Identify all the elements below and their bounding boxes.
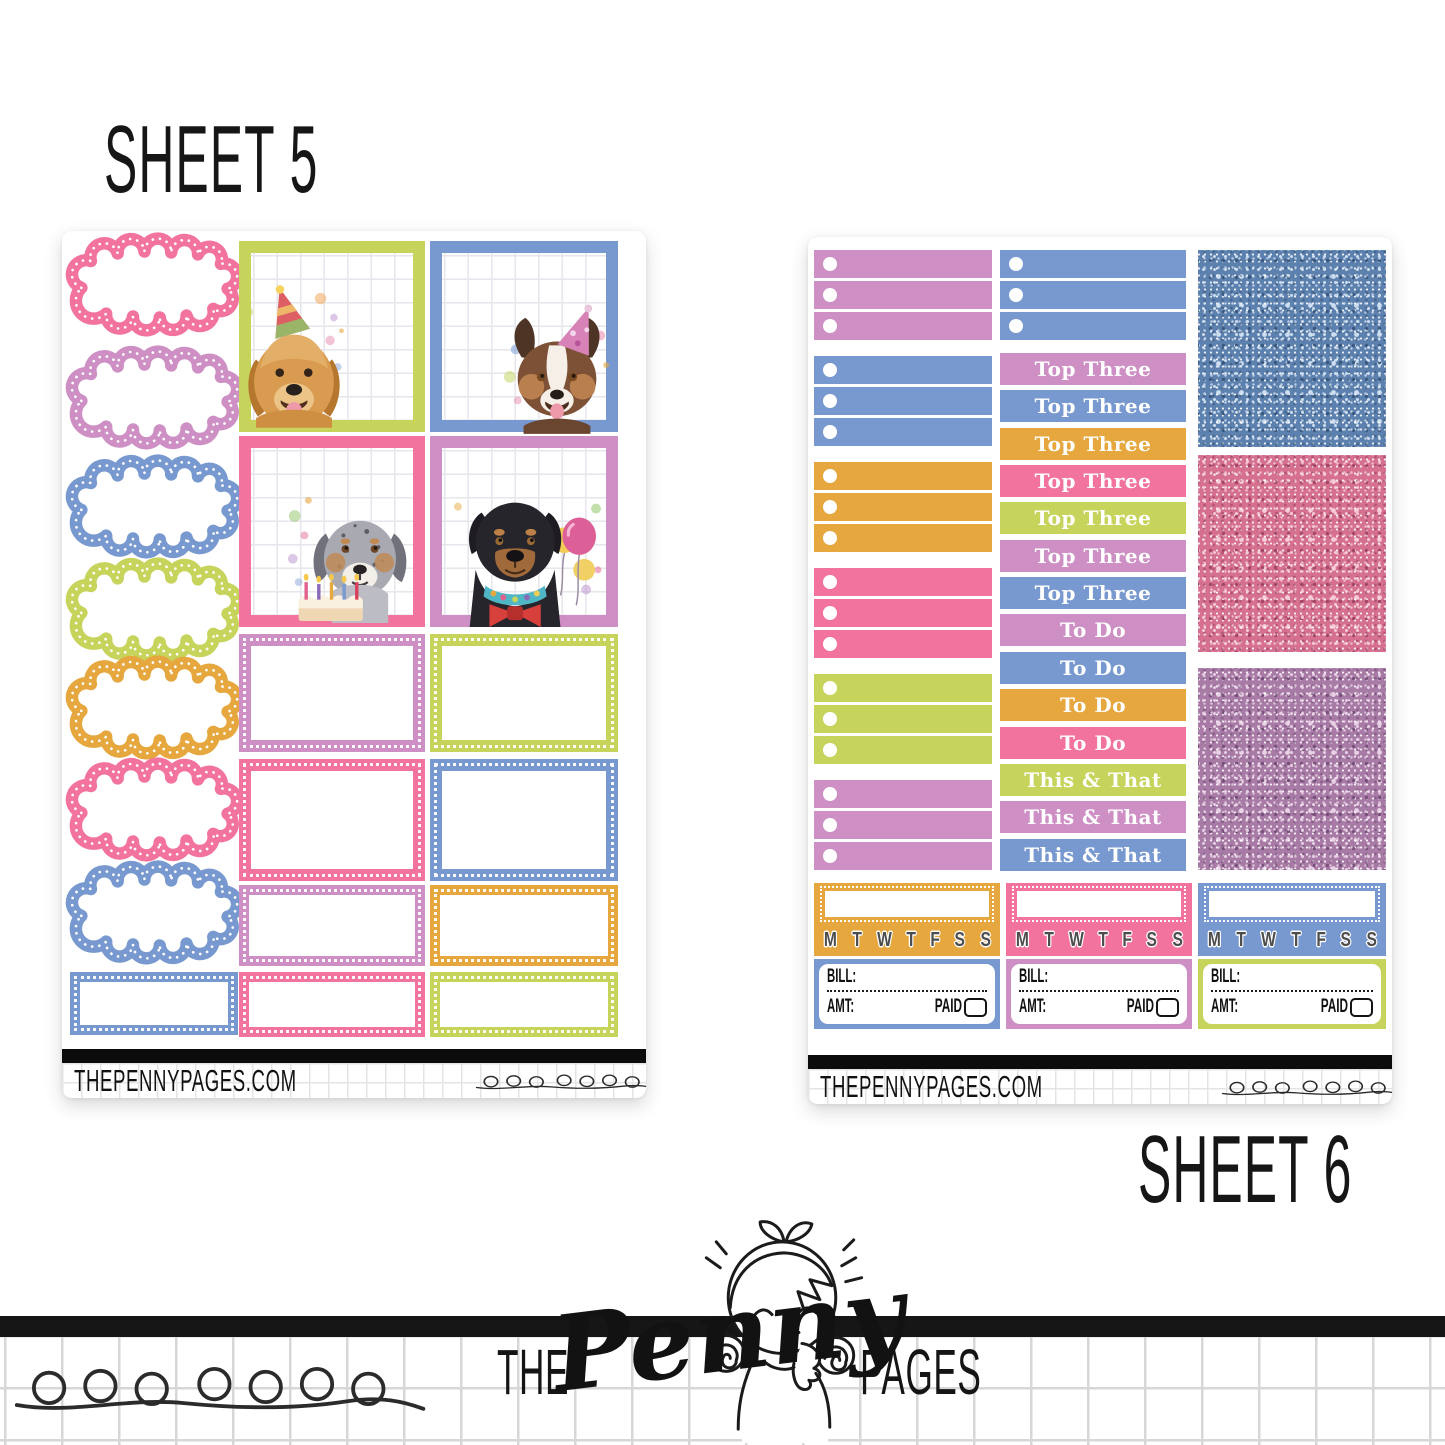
header-sticker-this-that: This & That (1000, 801, 1186, 833)
bill-tracker-sticker-blue: BILL:AMT: PAID (814, 959, 1000, 1029)
australian-shepherd-illustration (498, 306, 616, 434)
habit-tracker-title-box (825, 891, 989, 917)
checklist-row (814, 356, 992, 384)
sheet5-title: SHEET 5 (104, 116, 318, 204)
checklist-bullet-icon (823, 787, 837, 801)
wide-box-sticker-blue-dotted-border (74, 976, 234, 1031)
cloud-label-sticker-blue (68, 862, 240, 962)
header-sticker-top-three: Top Three (1000, 390, 1186, 422)
amount-row: AMT: PAID (1211, 994, 1373, 1020)
photo-box-golden-retriever (239, 241, 425, 432)
weekday-letter: S (1366, 929, 1376, 952)
bill-label: BILL: (1211, 966, 1240, 988)
checklist-bullet-icon (823, 469, 837, 483)
weekday-letter: S (955, 929, 965, 952)
cloud-label-sticker-pink (68, 234, 240, 334)
checklist-row (1000, 281, 1186, 309)
photo-box-rottweiler-balloons (430, 436, 618, 627)
header-sticker-top-three: Top Three (1000, 577, 1186, 609)
checklist-sticker-group-green (814, 674, 992, 767)
habit-tracker-sticker-blue: MTWTFSS (1198, 883, 1386, 956)
checklist-sticker-group-blue (1000, 250, 1186, 343)
checklist-bullet-icon (823, 531, 837, 545)
weekday-letter: S (1341, 929, 1351, 952)
full-box-sticker-green-dotted-border (434, 638, 614, 748)
weekday-letter: T (1236, 929, 1246, 952)
weekday-letter: W (1261, 929, 1276, 952)
half-box-sticker-green-dotted-border (434, 976, 614, 1033)
checklist-row (814, 736, 992, 764)
amount-row: AMT: PAID (1019, 994, 1179, 1020)
checklist-bullet-icon (823, 500, 837, 514)
glitter-swatch-purple-glitter (1198, 668, 1386, 870)
weekday-letter: S (1147, 929, 1157, 952)
divider-bar (62, 1049, 646, 1063)
checklist-bullet-icon (823, 743, 837, 757)
bill-tracker-body: BILL:AMT: PAID (1203, 964, 1381, 1024)
weekday-row: MTWTFSS (822, 928, 992, 952)
half-box-sticker-purple (239, 885, 425, 966)
header-sticker-this-that: This & That (1000, 839, 1186, 871)
weekday-letter: M (824, 929, 837, 952)
header-sticker-top-three: Top Three (1000, 540, 1186, 572)
checklist-row (1000, 312, 1186, 340)
sticker-sheet-5: THEPENNYPAGES.COM DOG BIRTHDAY LARGE BOX… (62, 231, 646, 1098)
checklist-bullet-icon (1009, 257, 1023, 271)
bill-label: BILL: (1019, 966, 1048, 988)
cloud-label-sticker-blue (68, 456, 240, 556)
weekday-letter: W (877, 929, 892, 952)
merle-dog-birthday-cake-illustration (285, 477, 431, 623)
full-box-sticker-purple-dotted-border (243, 638, 421, 748)
full-box-sticker-pink (239, 759, 425, 881)
half-box-sticker-green (430, 972, 618, 1037)
checklist-row (814, 674, 992, 702)
header-sticker-to-do: To Do (1000, 652, 1186, 684)
checklist-bullet-icon (823, 425, 837, 439)
site-url: THEPENNYPAGES.COM (74, 1063, 297, 1099)
header-sticker-to-do: To Do (1000, 727, 1186, 759)
photo-box-australian-shepherd (430, 241, 618, 432)
photo-box-merle-dog-cake (239, 436, 425, 627)
paid-label: PAID (1321, 996, 1348, 1018)
full-box-sticker-pink-dotted-border (243, 763, 421, 877)
checklist-bullet-icon (823, 288, 837, 302)
header-sticker-top-three: Top Three (1000, 465, 1186, 497)
checklist-sticker-group-orange (814, 462, 992, 555)
amt-label: AMT: (827, 996, 854, 1018)
amt-label: AMT: (1211, 996, 1238, 1018)
checklist-bullet-icon (1009, 288, 1023, 302)
checklist-bullet-icon (823, 849, 837, 863)
checklist-sticker-group-purple (814, 780, 992, 873)
checklist-row (814, 524, 992, 552)
loop-doodle (1221, 1074, 1392, 1100)
divider-bar (808, 1055, 1392, 1069)
wide-box-sticker-blue (70, 972, 238, 1035)
checklist-row (814, 250, 992, 278)
checklist-row (814, 780, 992, 808)
weekday-letter: M (1016, 929, 1029, 952)
sheet6-footer: THEPENNYPAGES.COM DOG BIRTHDAY HEADERS /… (808, 1069, 1392, 1104)
golden-retriever-illustration (237, 285, 351, 428)
checklist-bullet-icon (823, 319, 837, 333)
paid-group: PAID (918, 996, 987, 1018)
paid-label: PAID (1127, 996, 1154, 1018)
glitter-swatch-blue-glitter (1198, 250, 1386, 447)
checklist-row (814, 705, 992, 733)
checklist-row (814, 312, 992, 340)
bill-row: BILL: (827, 966, 987, 992)
loop-doodle (6, 1348, 438, 1424)
weekday-letter: F (1123, 929, 1133, 952)
glitter-swatch-pink-glitter (1198, 455, 1386, 652)
paid-checkbox (1156, 998, 1179, 1017)
bill-tracker-sticker-purple: BILL:AMT: PAID (1006, 959, 1192, 1029)
half-box-sticker-orange (430, 885, 618, 966)
checklist-row (814, 462, 992, 490)
half-box-sticker-orange-dotted-border (434, 889, 614, 962)
checklist-bullet-icon (823, 606, 837, 620)
checklist-row (1000, 250, 1186, 278)
full-box-sticker-blue-dotted-border (434, 763, 614, 877)
amt-label: AMT: (1019, 996, 1046, 1018)
weekday-letter: T (1099, 929, 1109, 952)
loop-doodle (475, 1068, 646, 1094)
cloud-label-sticker-pink (68, 759, 240, 859)
checklist-bullet-icon (823, 394, 837, 408)
full-box-sticker-blue (430, 759, 618, 881)
checklist-sticker-group-blue (814, 356, 992, 449)
paid-group: PAID (1304, 996, 1373, 1018)
half-box-sticker-purple-dotted-border (243, 889, 421, 962)
weekday-letter: T (1292, 929, 1302, 952)
half-box-sticker-pink-dotted-border (243, 976, 421, 1033)
rottweiler-balloons-illustration (438, 479, 606, 627)
checklist-bullet-icon (1009, 319, 1023, 333)
sticker-sheet-6: Top ThreeTop ThreeTop ThreeTop ThreeTop … (808, 237, 1392, 1104)
weekday-row: MTWTFSS (1014, 928, 1184, 952)
product-image: SHEET 5 SHEET 6 (0, 0, 1445, 1445)
habit-tracker-sticker-orange: MTWTFSS (814, 883, 1000, 956)
amount-row: AMT: PAID (827, 994, 987, 1020)
checklist-row (814, 842, 992, 870)
weekday-letter: S (980, 929, 990, 952)
checklist-row (814, 630, 992, 658)
weekday-letter: F (1316, 929, 1326, 952)
paid-checkbox (964, 998, 987, 1017)
weekday-row: MTWTFSS (1206, 928, 1378, 952)
header-sticker-top-three: Top Three (1000, 502, 1186, 534)
weekday-letter: F (931, 929, 941, 952)
sheet5-footer: THEPENNYPAGES.COM DOG BIRTHDAY LARGE BOX… (62, 1063, 646, 1098)
bill-label: BILL: (827, 966, 856, 988)
full-box-sticker-purple (239, 634, 425, 752)
header-sticker-to-do: To Do (1000, 614, 1186, 646)
checklist-bullet-icon (823, 575, 837, 589)
habit-tracker-sticker-pink: MTWTFSS (1006, 883, 1192, 956)
header-sticker-top-three: Top Three (1000, 428, 1186, 460)
checklist-sticker-group-purple (814, 250, 992, 343)
weekday-letter: T (907, 929, 917, 952)
party-hat-icon (261, 280, 310, 338)
checklist-row (814, 568, 992, 596)
checklist-row (814, 599, 992, 627)
checklist-row (814, 281, 992, 309)
checklist-row (814, 387, 992, 415)
checklist-row (814, 811, 992, 839)
paid-checkbox (1350, 998, 1373, 1017)
checklist-bullet-icon (823, 712, 837, 726)
habit-tracker-title-box (1017, 891, 1181, 917)
bill-row: BILL: (1211, 966, 1373, 992)
checklist-bullet-icon (823, 363, 837, 377)
checklist-row (814, 493, 992, 521)
full-box-sticker-green (430, 634, 618, 752)
header-sticker-top-three: Top Three (1000, 353, 1186, 385)
weekday-letter: W (1069, 929, 1084, 952)
half-box-sticker-pink (239, 972, 425, 1037)
bill-tracker-body: BILL:AMT: PAID (819, 964, 995, 1024)
weekday-letter: S (1172, 929, 1182, 952)
sheet6-title: SHEET 6 (1138, 1126, 1352, 1214)
weekday-letter: T (1044, 929, 1054, 952)
bill-row: BILL: (1019, 966, 1179, 992)
checklist-bullet-icon (823, 257, 837, 271)
cloud-label-sticker-green (68, 559, 240, 659)
site-url: THEPENNYPAGES.COM (820, 1069, 1043, 1105)
checklist-bullet-icon (823, 681, 837, 695)
checklist-sticker-group-pink (814, 568, 992, 661)
cloud-label-sticker-purple (68, 347, 240, 447)
bill-tracker-body: BILL:AMT: PAID (1011, 964, 1187, 1024)
weekday-letter: T (852, 929, 862, 952)
checklist-bullet-icon (823, 637, 837, 651)
habit-tracker-title-box (1209, 891, 1375, 917)
cloud-label-sticker-orange (68, 657, 240, 757)
bill-tracker-sticker-green: BILL:AMT: PAID (1198, 959, 1386, 1029)
checklist-bullet-icon (823, 818, 837, 832)
paid-label: PAID (935, 996, 962, 1018)
header-sticker-to-do: To Do (1000, 689, 1186, 721)
paid-group: PAID (1110, 996, 1179, 1018)
header-sticker-this-that: This & That (1000, 764, 1186, 796)
weekday-letter: M (1208, 929, 1221, 952)
checklist-row (814, 418, 992, 446)
